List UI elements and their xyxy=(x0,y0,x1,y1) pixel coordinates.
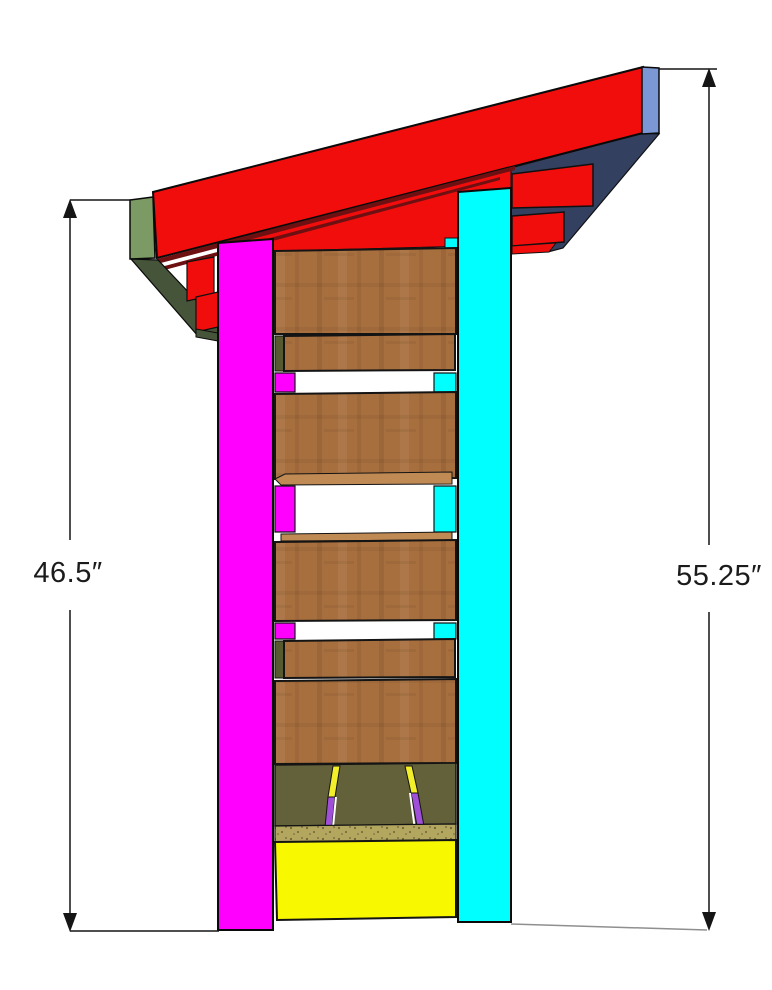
rear-left-post-glimpse xyxy=(275,623,295,639)
rear-right-post-glimpse xyxy=(434,373,456,392)
dimension-label-left: 46.5″ xyxy=(33,557,102,589)
louver-slat-4 xyxy=(275,540,456,621)
left-purlin-end-lower xyxy=(196,292,218,332)
arrow-up-icon xyxy=(702,68,716,87)
arrow-down-icon xyxy=(63,913,77,932)
rear-right-post-glimpse xyxy=(434,486,456,532)
arrow-down-icon xyxy=(702,912,716,931)
rear-left-post-glimpse xyxy=(275,486,295,532)
floor-deck xyxy=(275,763,456,826)
rear-left-post-glimpse xyxy=(275,373,295,392)
dimension-label-right: 55.25″ xyxy=(676,560,762,592)
louver-slat-3 xyxy=(275,392,456,479)
right-post xyxy=(458,188,511,922)
dimension-right: 55.25″ xyxy=(659,68,762,931)
rear-right-post-glimpse xyxy=(434,623,456,639)
right-purlin-end-lower xyxy=(512,212,564,246)
louver-slat-1 xyxy=(275,248,456,334)
louver-slat-2 xyxy=(284,334,455,371)
louver-slat-5 xyxy=(284,639,455,678)
left-post xyxy=(218,239,273,930)
slat-5-edge-wedge xyxy=(275,641,284,678)
right-rafter-end-cap xyxy=(642,67,659,134)
diagram-canvas: 46.5″ 55.25″ xyxy=(0,0,772,990)
kick-panel xyxy=(275,840,456,920)
louver-slat-6 xyxy=(275,679,456,764)
slat-2-edge-wedge xyxy=(275,336,284,371)
ground-line xyxy=(511,924,707,930)
slat-top-face-strip xyxy=(275,472,452,485)
diagram-page: 46.5″ 55.25″ xyxy=(0,0,772,990)
arrow-up-icon xyxy=(63,199,77,218)
left-rafter-end-cap xyxy=(130,197,155,259)
